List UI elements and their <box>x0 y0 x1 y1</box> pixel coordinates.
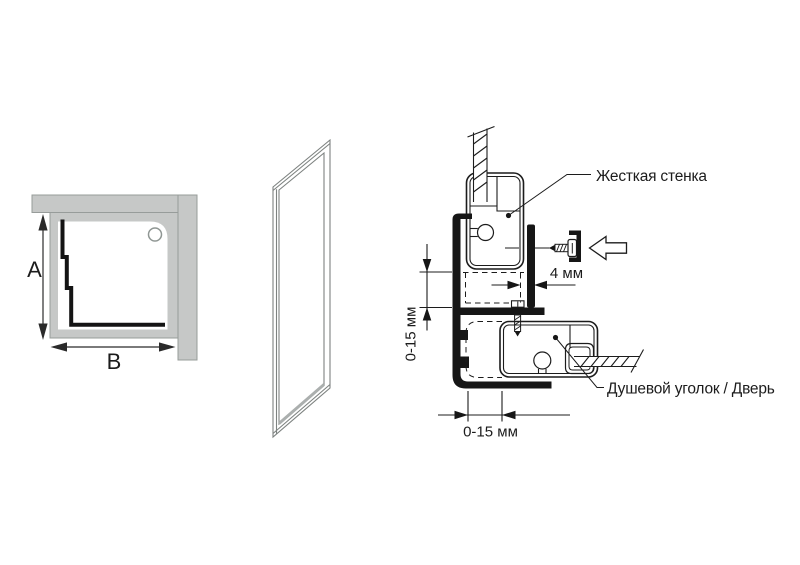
panel-bottom-face <box>273 385 330 434</box>
push-direction-arrow <box>590 237 627 260</box>
installation-diagram-page: A B <box>0 0 800 565</box>
wall-channel-profiles <box>453 214 552 389</box>
panel-frame-inner <box>279 153 324 424</box>
door-label: Душевой уголок / Дверь <box>607 381 775 398</box>
dim-b-label: B <box>107 349 122 374</box>
horizontal-adjust-dim-label: 0-15 мм <box>463 424 518 441</box>
vertical-adjust-dim-label: 0-15 мм <box>403 307 420 362</box>
dim-a-label: A <box>27 257 42 282</box>
section-detail: 0-15 мм 4 мм 0-15 мм Жесткая стенка <box>403 127 775 441</box>
wall-right <box>178 195 197 360</box>
profile-roller-circle <box>478 225 494 241</box>
panel-bottom-frame-shade <box>279 385 324 424</box>
wall-top <box>32 195 197 213</box>
fixed-wall-label: Жесткая стенка <box>596 168 707 185</box>
wall-gap-dim-label: 4 мм <box>550 265 583 282</box>
vertical-adjust-dimension <box>420 244 453 331</box>
mid-channel-flange <box>461 308 545 316</box>
gasket-notch-2 <box>461 357 470 369</box>
wall-anchor-screw <box>535 231 627 263</box>
door-glass <box>574 350 644 373</box>
plan-view: A B <box>27 195 197 374</box>
glass-panel-drawing <box>273 140 330 437</box>
drain-circle <box>149 228 162 241</box>
horizontal-adjust-dimension <box>438 391 570 422</box>
adjustment-screw <box>512 301 525 337</box>
gasket-notch-1 <box>461 330 469 340</box>
panel-top-face <box>273 144 330 191</box>
mid-channel-bar <box>527 225 535 308</box>
door-roller-circle <box>534 352 551 369</box>
technical-drawing: A B <box>0 0 800 565</box>
fixed-wall-glass <box>468 127 495 203</box>
fixed-wall-leader <box>506 175 591 219</box>
